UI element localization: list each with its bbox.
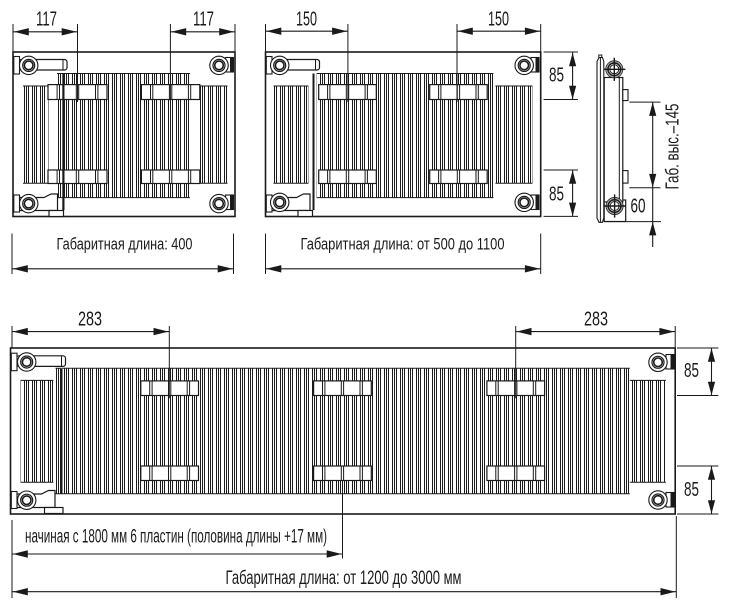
svg-text:117: 117: [36, 9, 57, 31]
svg-text:85: 85: [684, 479, 699, 501]
svg-text:начиная с 1800 мм 6 пластин (п: начиная с 1800 мм 6 пластин (половина дл…: [25, 527, 327, 548]
svg-text:85: 85: [549, 65, 564, 87]
svg-text:85: 85: [684, 360, 699, 382]
svg-text:150: 150: [296, 9, 317, 31]
svg-text:150: 150: [488, 9, 509, 31]
svg-text:Габ. выс.–145: Габ. выс.–145: [662, 104, 683, 190]
svg-text:Габаритная длина: от 500 до 11: Габаритная длина: от 500 до 1100: [301, 235, 505, 254]
svg-text:85: 85: [549, 184, 564, 206]
svg-text:283: 283: [584, 309, 608, 331]
svg-text:Габаритная длина: от 1200 до 3: Габаритная длина: от 1200 до 3000 мм: [226, 568, 462, 589]
svg-text:Габаритная длина: 400: Габаритная длина: 400: [57, 235, 193, 254]
svg-text:283: 283: [78, 309, 102, 331]
svg-text:60: 60: [631, 196, 646, 218]
svg-text:117: 117: [193, 9, 214, 31]
